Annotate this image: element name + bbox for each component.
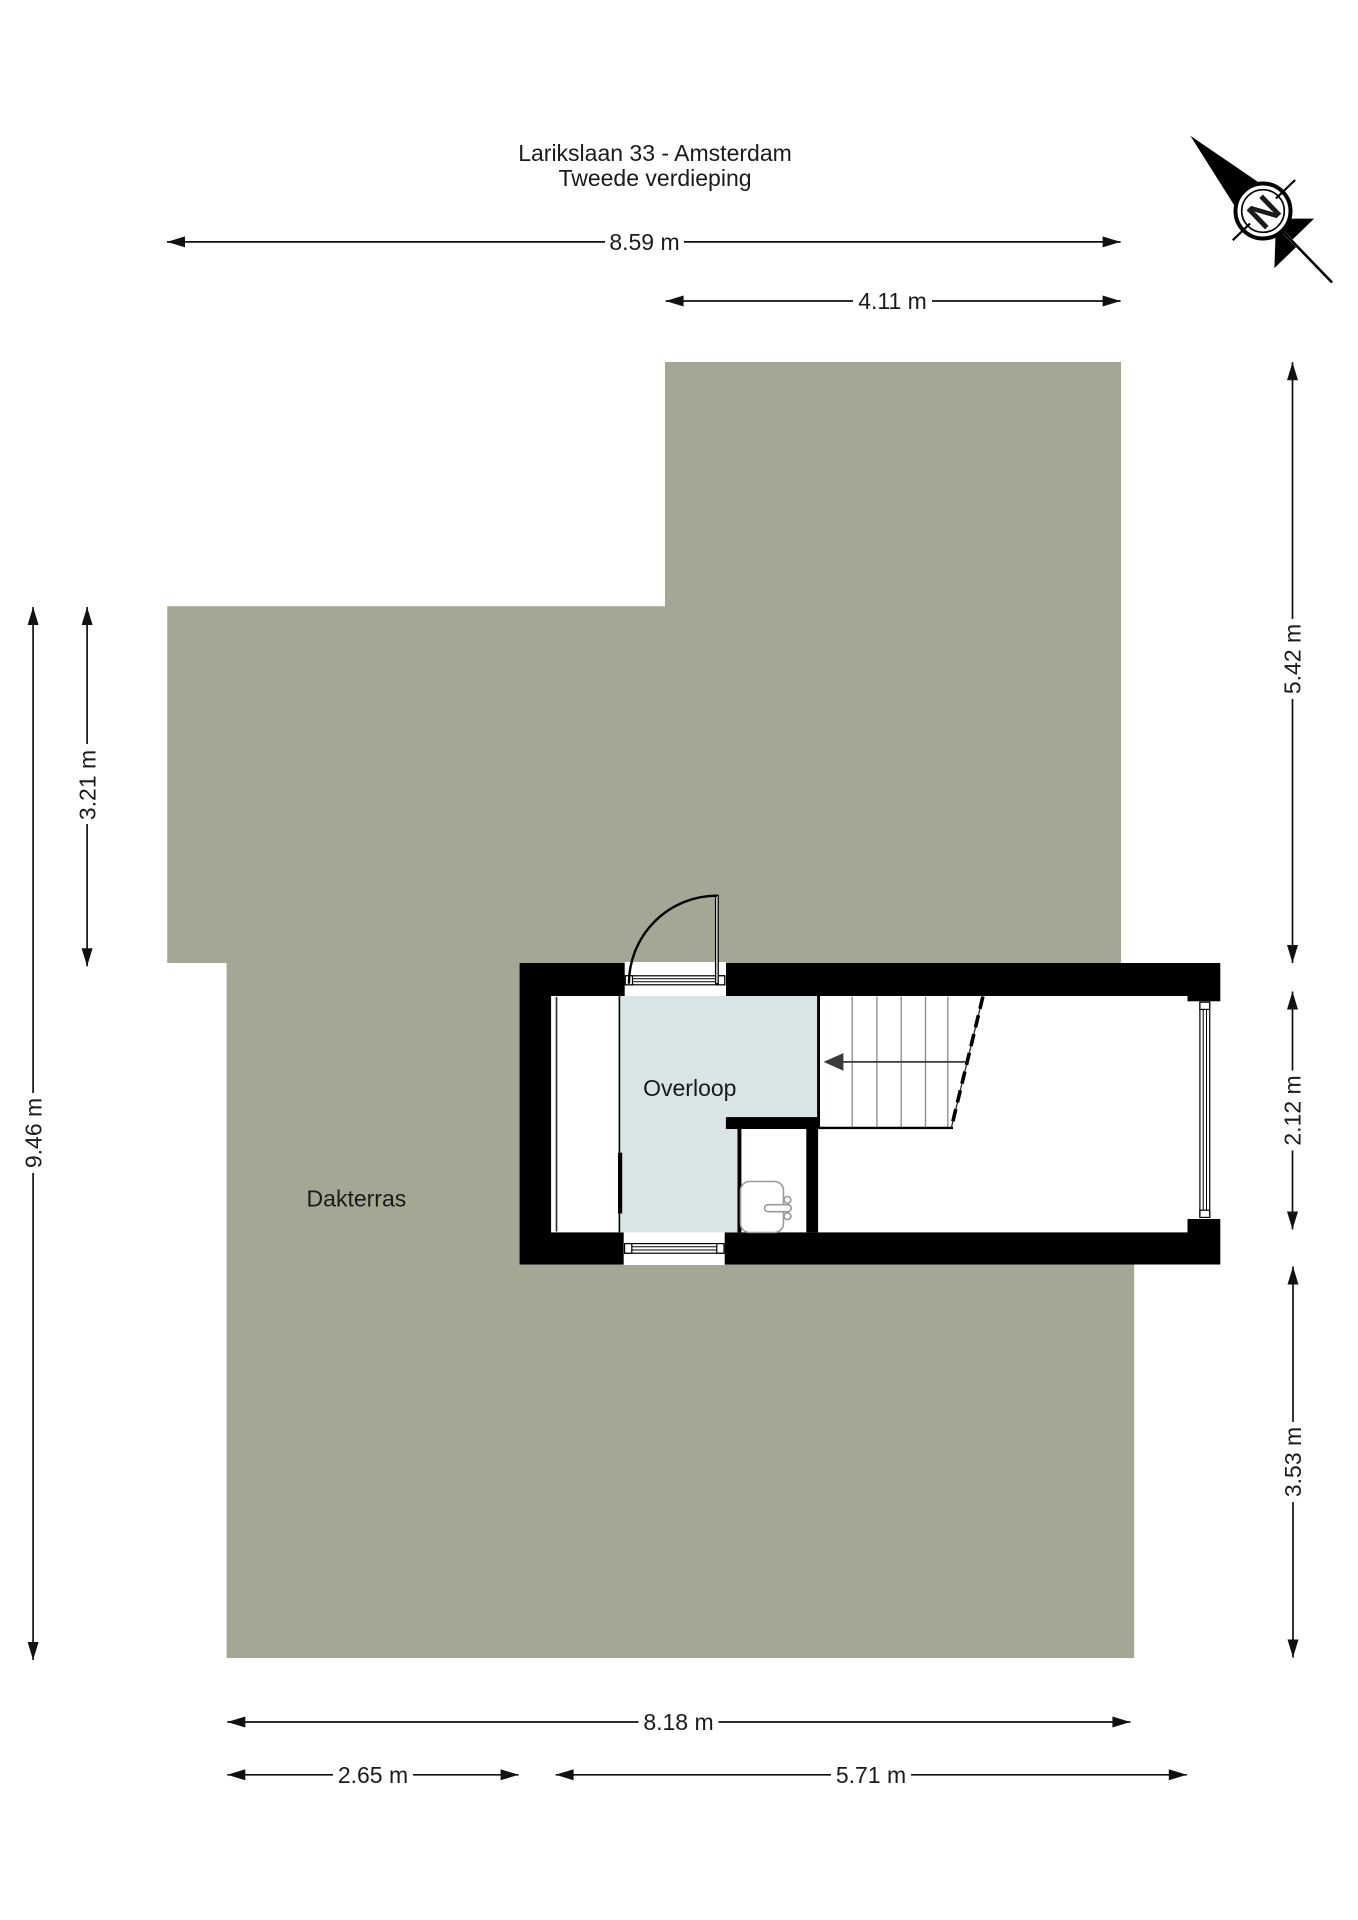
svg-text:5.42 m: 5.42 m xyxy=(1280,624,1306,694)
svg-text:2.12 m: 2.12 m xyxy=(1280,1075,1306,1145)
svg-text:9.46 m: 9.46 m xyxy=(20,1098,46,1168)
svg-text:8.18 m: 8.18 m xyxy=(643,1709,713,1735)
svg-text:Overloop: Overloop xyxy=(643,1075,736,1101)
svg-text:2.65 m: 2.65 m xyxy=(338,1762,408,1788)
svg-text:3.21 m: 3.21 m xyxy=(74,750,100,820)
svg-text:Tweede verdieping: Tweede verdieping xyxy=(558,165,751,191)
svg-text:Dakterras: Dakterras xyxy=(307,1186,407,1212)
svg-text:8.59 m: 8.59 m xyxy=(609,229,679,255)
svg-text:4.11 m: 4.11 m xyxy=(858,288,927,314)
svg-text:Larikslaan 33 - Amsterdam: Larikslaan 33 - Amsterdam xyxy=(518,140,792,166)
svg-text:5.71 m: 5.71 m xyxy=(836,1762,906,1788)
svg-text:3.53 m: 3.53 m xyxy=(1280,1427,1306,1497)
